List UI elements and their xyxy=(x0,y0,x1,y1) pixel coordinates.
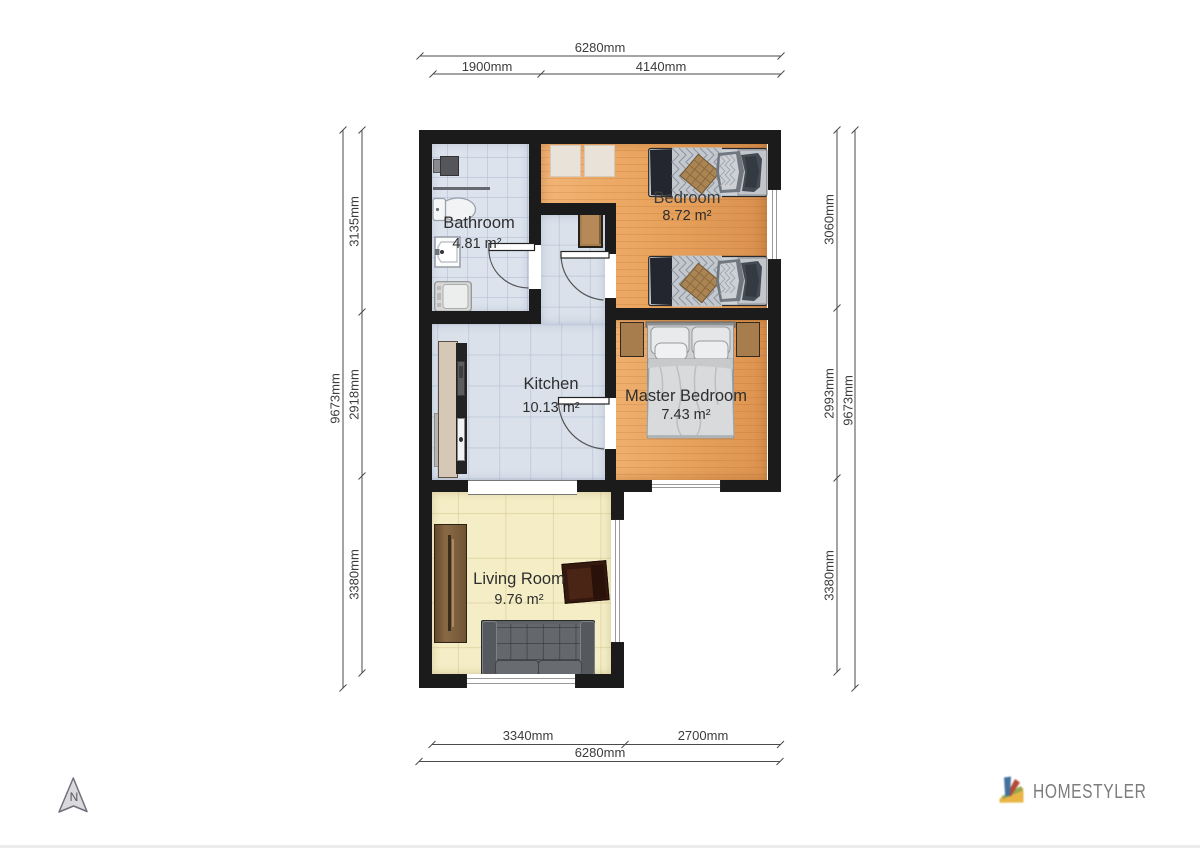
svg-text:N: N xyxy=(70,790,79,804)
